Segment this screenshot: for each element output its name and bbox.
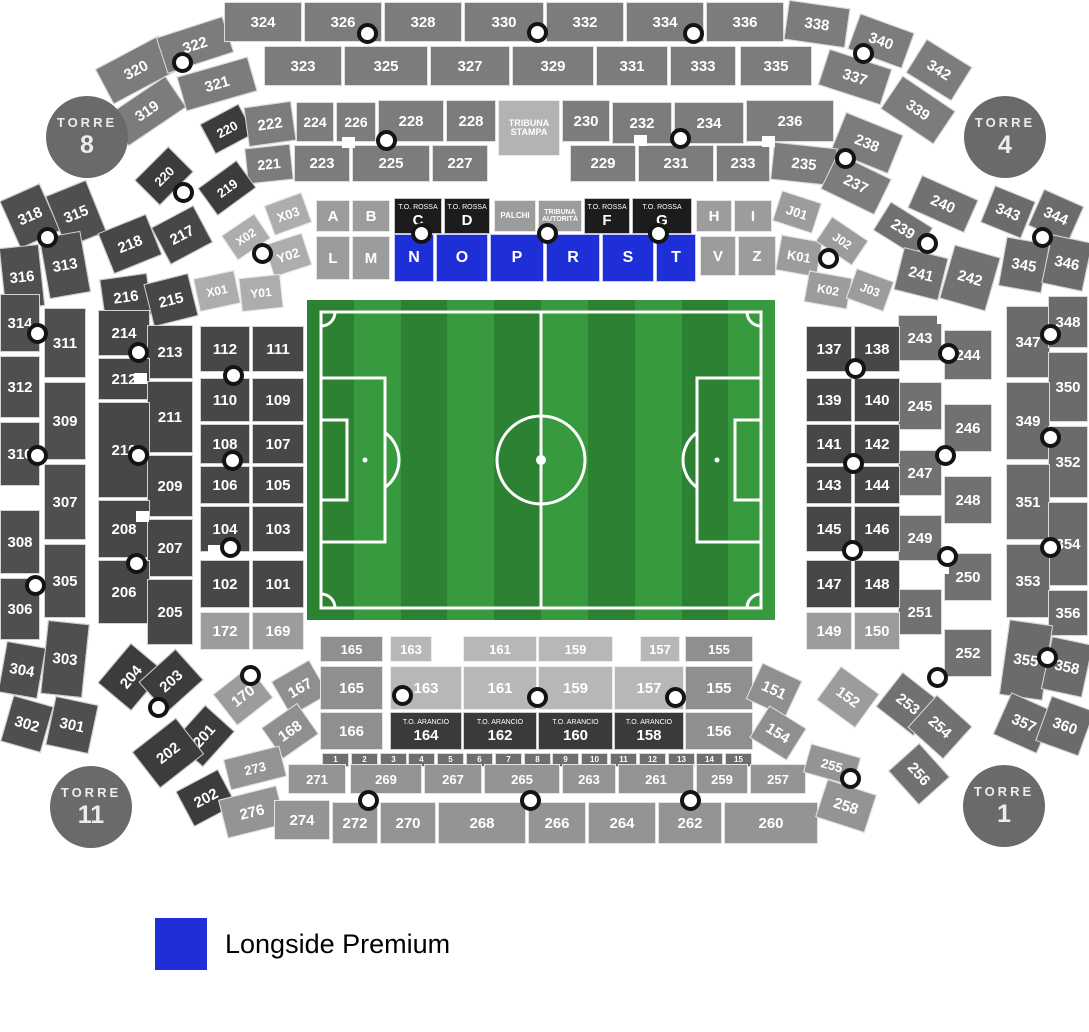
section-label: 166 bbox=[339, 724, 364, 739]
section-s[interactable]: S bbox=[602, 234, 654, 282]
section-label: 323 bbox=[290, 59, 315, 74]
section-105: 105 bbox=[252, 466, 304, 504]
section-221: 221 bbox=[244, 144, 294, 185]
section-label: 107 bbox=[265, 437, 290, 452]
section-label: 262 bbox=[677, 816, 702, 831]
section-b: B bbox=[352, 200, 390, 232]
section-270: 270 bbox=[380, 802, 436, 844]
section-sub-label: T.O. ARANCIO bbox=[403, 719, 449, 726]
section-label: 222 bbox=[257, 115, 284, 133]
section-label: 2 bbox=[362, 756, 366, 764]
section-label: 247 bbox=[907, 466, 932, 481]
section-label: 344 bbox=[1042, 204, 1071, 228]
section-label: 207 bbox=[157, 541, 182, 556]
gate-dot bbox=[223, 365, 244, 386]
section-325: 325 bbox=[344, 46, 428, 86]
section-150: 150 bbox=[854, 612, 900, 650]
section-label: 265 bbox=[511, 773, 533, 786]
section-360: 360 bbox=[1035, 696, 1089, 757]
section-label: 336 bbox=[732, 15, 757, 30]
section-301: 301 bbox=[45, 696, 98, 754]
section-label: P bbox=[512, 250, 523, 266]
tower-number: 8 bbox=[80, 131, 94, 160]
section-label: 228 bbox=[398, 114, 423, 129]
section-label: 233 bbox=[730, 156, 755, 171]
section-323: 323 bbox=[264, 46, 342, 86]
section-label: 109 bbox=[265, 393, 290, 408]
gate-dot bbox=[853, 43, 874, 64]
section-207: 207 bbox=[147, 519, 193, 577]
section-label: 148 bbox=[864, 577, 889, 592]
section-274: 274 bbox=[274, 800, 330, 840]
section-y01: Y01 bbox=[238, 274, 283, 312]
gate-dot bbox=[527, 22, 548, 43]
section-332: 332 bbox=[546, 2, 624, 42]
section-label: R bbox=[567, 250, 579, 266]
section-271: 271 bbox=[288, 764, 346, 794]
gate-dot bbox=[842, 540, 863, 561]
section-205: 205 bbox=[147, 579, 193, 645]
section-label: X01 bbox=[205, 283, 228, 299]
section-label: 248 bbox=[955, 493, 980, 508]
section-label: 259 bbox=[711, 773, 733, 786]
section-101: 101 bbox=[252, 560, 304, 608]
section-label: 328 bbox=[410, 15, 435, 30]
section-label: 151 bbox=[759, 678, 788, 702]
section-v: V bbox=[700, 236, 736, 276]
section-label: K01 bbox=[786, 248, 812, 265]
section-158: T.O. ARANCIO158 bbox=[614, 712, 684, 750]
section-163: 163 bbox=[390, 636, 432, 662]
section-label: 163 bbox=[413, 681, 438, 696]
section-label: 214 bbox=[111, 326, 136, 341]
section-252: 252 bbox=[944, 629, 992, 677]
section-label: 252 bbox=[955, 646, 980, 661]
section-263: 263 bbox=[562, 764, 616, 794]
section-225: 225 bbox=[352, 145, 430, 182]
section-label: 306 bbox=[7, 602, 32, 617]
gate-dot bbox=[37, 227, 58, 248]
section-245: 245 bbox=[898, 382, 942, 430]
gate-dot bbox=[835, 148, 856, 169]
section-label: S bbox=[623, 250, 634, 266]
section-label: 106 bbox=[212, 478, 237, 493]
section-112: 112 bbox=[200, 326, 250, 372]
section-147: 147 bbox=[806, 560, 852, 608]
section-label: 257 bbox=[767, 773, 789, 786]
section-label: 360 bbox=[1051, 715, 1080, 738]
vomitory-mark bbox=[134, 373, 147, 384]
section-label: 321 bbox=[203, 73, 231, 94]
section-259: 259 bbox=[696, 764, 748, 794]
section-label: 353 bbox=[1015, 574, 1040, 589]
section-155: 155 bbox=[685, 666, 753, 710]
section-label: 232 bbox=[629, 116, 654, 131]
section-label: 145 bbox=[816, 522, 841, 537]
section-label: 212 bbox=[111, 372, 136, 387]
section-label: 104 bbox=[212, 522, 237, 537]
section-label: 165 bbox=[341, 643, 363, 656]
section-label: 226 bbox=[344, 115, 367, 129]
section-p[interactable]: P bbox=[490, 234, 544, 282]
section-label: 351 bbox=[1015, 495, 1040, 510]
gate-dot bbox=[173, 182, 194, 203]
section-o[interactable]: O bbox=[436, 234, 488, 282]
section-sub-label: T.O. ROSSA bbox=[587, 204, 626, 211]
section-label: X03 bbox=[275, 204, 301, 224]
gate-dot bbox=[840, 768, 861, 789]
section-331: 331 bbox=[596, 46, 668, 86]
gate-dot bbox=[818, 248, 839, 269]
section-label: 261 bbox=[645, 773, 667, 786]
section-label: Y02 bbox=[275, 245, 301, 265]
section-label: 335 bbox=[763, 59, 788, 74]
section-236: 236 bbox=[746, 100, 834, 142]
section-sub-label: T.O. ARANCIO bbox=[552, 719, 598, 726]
section-label: 157 bbox=[649, 643, 671, 656]
section-label: 303 bbox=[52, 650, 78, 668]
section-label: 6 bbox=[477, 756, 481, 764]
section-label: 167 bbox=[285, 675, 314, 701]
section-label: D bbox=[462, 213, 473, 228]
section-label: 152 bbox=[833, 684, 862, 711]
section-label: 350 bbox=[1055, 380, 1080, 395]
section-222: 222 bbox=[243, 101, 296, 147]
section-label: 311 bbox=[53, 336, 77, 351]
section-k02: K02 bbox=[804, 270, 853, 309]
gate-dot bbox=[537, 223, 558, 244]
section-label: 223 bbox=[309, 156, 334, 171]
section-label: 244 bbox=[955, 348, 980, 363]
section-label: 169 bbox=[265, 624, 290, 639]
tower-4: TORRE4 bbox=[964, 96, 1046, 178]
section-label: 243 bbox=[907, 331, 932, 346]
section-333: 333 bbox=[670, 46, 736, 86]
section-label: 220 bbox=[152, 164, 177, 189]
section-label: 202 bbox=[191, 786, 220, 811]
section-label: 236 bbox=[777, 114, 802, 129]
section-label: 143 bbox=[816, 478, 841, 493]
gate-dot bbox=[1040, 324, 1061, 345]
section-label: 159 bbox=[563, 681, 588, 696]
section-160: T.O. ARANCIO160 bbox=[538, 712, 613, 750]
section-343: 343 bbox=[980, 185, 1036, 239]
gate-dot bbox=[128, 445, 149, 466]
section-label: 111 bbox=[266, 342, 289, 357]
section-106: 106 bbox=[200, 466, 250, 504]
gate-dot bbox=[1037, 647, 1058, 668]
section-sub-label: T.O. ARANCIO bbox=[626, 719, 672, 726]
section-label: 339 bbox=[903, 97, 932, 123]
section-sub-label: T.O. ARANCIO bbox=[477, 719, 523, 726]
section-230: 230 bbox=[562, 100, 610, 142]
gate-dot bbox=[392, 685, 413, 706]
gate-dot bbox=[680, 790, 701, 811]
section-label: 157 bbox=[636, 681, 661, 696]
gate-dot bbox=[843, 453, 864, 474]
section-a: A bbox=[316, 200, 350, 232]
section-213: 213 bbox=[147, 325, 193, 379]
section-328: 328 bbox=[384, 2, 462, 42]
tower-number: 1 bbox=[997, 800, 1011, 829]
section-label: 304 bbox=[8, 660, 35, 679]
gate-dot bbox=[172, 52, 193, 73]
section-label: V bbox=[713, 249, 723, 264]
section-label: 103 bbox=[265, 522, 290, 537]
vomitory-mark bbox=[634, 135, 647, 146]
section-label: 269 bbox=[375, 773, 397, 786]
section-label: N bbox=[408, 250, 420, 266]
gate-dot bbox=[252, 243, 273, 264]
section-223: 223 bbox=[294, 145, 350, 182]
section-label: 161 bbox=[487, 681, 512, 696]
section-label: 221 bbox=[257, 156, 282, 172]
section-label: 237 bbox=[841, 172, 870, 196]
section-label: 165 bbox=[339, 681, 364, 696]
tower-1: TORRE1 bbox=[963, 765, 1045, 847]
section-label: 327 bbox=[457, 59, 482, 74]
section-label: 11 bbox=[619, 756, 627, 764]
section-246: 246 bbox=[944, 404, 992, 452]
gate-dot bbox=[357, 23, 378, 44]
section-273: 273 bbox=[223, 745, 287, 790]
section-label: 349 bbox=[1015, 414, 1040, 429]
tower-number: 4 bbox=[998, 131, 1012, 160]
section-label: 256 bbox=[905, 760, 933, 789]
section-257: 257 bbox=[750, 764, 806, 794]
section-label: 155 bbox=[706, 681, 731, 696]
tower-label: TORRE bbox=[975, 115, 1035, 130]
section-269: 269 bbox=[350, 764, 422, 794]
vomitory-mark bbox=[762, 136, 775, 147]
section-152: 152 bbox=[816, 666, 880, 728]
section-label: 343 bbox=[994, 200, 1023, 223]
section-label: 227 bbox=[447, 156, 472, 171]
section-144: 144 bbox=[854, 466, 900, 504]
section-164: T.O. ARANCIO164 bbox=[390, 712, 462, 750]
section-249: 249 bbox=[898, 515, 942, 561]
section-label: 312 bbox=[7, 380, 32, 395]
section-143: 143 bbox=[806, 466, 852, 504]
section-label: 338 bbox=[804, 15, 831, 33]
section-label: 162 bbox=[487, 728, 512, 743]
section-label: 268 bbox=[469, 816, 494, 831]
section-166: 166 bbox=[320, 712, 383, 750]
section-label: 112 bbox=[213, 342, 237, 357]
section-label: 208 bbox=[111, 522, 136, 537]
section-label: 12 bbox=[648, 756, 657, 764]
section-label: 155 bbox=[708, 643, 730, 656]
section-label: 230 bbox=[573, 114, 598, 129]
section-j03: J03 bbox=[846, 268, 895, 312]
gate-dot bbox=[917, 233, 938, 254]
section-palchi: PALCHI bbox=[494, 200, 536, 232]
section-label: 254 bbox=[926, 713, 955, 741]
section-label: 234 bbox=[696, 116, 721, 131]
section-label: 220 bbox=[214, 118, 239, 140]
section-label: 14 bbox=[705, 756, 714, 764]
section-211: 211 bbox=[147, 381, 193, 453]
section-label: 229 bbox=[590, 156, 615, 171]
section-label: 105 bbox=[265, 478, 290, 493]
section-303: 303 bbox=[40, 620, 90, 698]
section-label: 139 bbox=[816, 393, 841, 408]
section-label: 318 bbox=[16, 204, 45, 228]
gate-dot bbox=[927, 667, 948, 688]
gate-dot bbox=[358, 790, 379, 811]
section-label: 342 bbox=[924, 57, 953, 83]
section-tribuna-stampa: TRIBUNA STAMPA bbox=[498, 100, 560, 156]
section-111: 111 bbox=[252, 326, 304, 372]
section-label: 235 bbox=[791, 155, 817, 173]
section-label: 271 bbox=[306, 773, 328, 786]
section-label: 158 bbox=[636, 728, 661, 743]
gate-dot bbox=[1040, 427, 1061, 448]
section-159: 159 bbox=[538, 666, 613, 710]
vomitory-mark bbox=[136, 511, 149, 522]
section-304: 304 bbox=[0, 641, 46, 699]
section-label: 319 bbox=[132, 98, 161, 124]
gate-dot bbox=[27, 323, 48, 344]
section-label: 320 bbox=[121, 58, 150, 83]
section-350: 350 bbox=[1048, 352, 1088, 422]
gate-dot bbox=[25, 575, 46, 596]
section-label: 352 bbox=[1055, 455, 1080, 470]
section-label: 216 bbox=[113, 288, 140, 306]
section-228: 228 bbox=[446, 100, 496, 142]
section-label: I bbox=[751, 209, 755, 224]
section-156: 156 bbox=[685, 712, 753, 750]
section-sub-label: T.O. ROSSA bbox=[447, 204, 486, 211]
section-label: 245 bbox=[907, 399, 932, 414]
section-338: 338 bbox=[784, 0, 851, 48]
section-label: 272 bbox=[342, 816, 367, 831]
section-label: 217 bbox=[167, 223, 196, 248]
section-label: 211 bbox=[158, 410, 182, 425]
section-356: 356 bbox=[1048, 590, 1088, 636]
section-label: 160 bbox=[563, 728, 588, 743]
section-218: 218 bbox=[98, 214, 163, 274]
section-label: 9 bbox=[563, 756, 567, 764]
section-label: 326 bbox=[330, 15, 355, 30]
section-157: 157 bbox=[640, 636, 680, 662]
gate-dot bbox=[520, 790, 541, 811]
section-label: A bbox=[328, 209, 339, 224]
section-label: 228 bbox=[458, 114, 483, 129]
section-251: 251 bbox=[898, 589, 942, 635]
gate-dot bbox=[128, 342, 149, 363]
section-label: 267 bbox=[442, 773, 464, 786]
section-label: 102 bbox=[212, 577, 237, 592]
section-label: 309 bbox=[52, 414, 77, 429]
section-label: 305 bbox=[52, 574, 77, 589]
section-label: 302 bbox=[13, 713, 41, 734]
section-155: 155 bbox=[685, 636, 753, 662]
section-248: 248 bbox=[944, 476, 992, 524]
section-label: 218 bbox=[116, 232, 145, 255]
section-label: 146 bbox=[864, 522, 889, 537]
section-label: Z bbox=[752, 249, 761, 264]
tower-label: TORRE bbox=[57, 115, 117, 130]
gate-dot bbox=[1032, 227, 1053, 248]
section-label: 5 bbox=[448, 756, 452, 764]
gate-dot bbox=[411, 223, 432, 244]
gate-dot bbox=[938, 343, 959, 364]
section-label: 150 bbox=[864, 624, 889, 639]
section-d: T.O. ROSSAD bbox=[444, 198, 490, 234]
section-148: 148 bbox=[854, 560, 900, 608]
section-349: 349 bbox=[1006, 382, 1050, 460]
section-label: 246 bbox=[955, 421, 980, 436]
gate-dot bbox=[148, 697, 169, 718]
section-label: 1 bbox=[333, 756, 337, 764]
section-110: 110 bbox=[200, 378, 250, 422]
gate-dot bbox=[845, 358, 866, 379]
section-103: 103 bbox=[252, 506, 304, 552]
section-208: 208 bbox=[98, 500, 150, 558]
section-label: 332 bbox=[572, 15, 597, 30]
section-label: 215 bbox=[157, 290, 185, 311]
section-label: 315 bbox=[62, 202, 91, 225]
section-label: 138 bbox=[864, 342, 889, 357]
section-102: 102 bbox=[200, 560, 250, 608]
section-label: 264 bbox=[609, 816, 634, 831]
section-label: 239 bbox=[888, 216, 917, 242]
section-label: 331 bbox=[619, 59, 644, 74]
gate-dot bbox=[220, 537, 241, 558]
football-pitch bbox=[307, 300, 775, 620]
tower-label: TORRE bbox=[974, 784, 1034, 799]
section-209: 209 bbox=[147, 455, 193, 517]
section-162: T.O. ARANCIO162 bbox=[463, 712, 537, 750]
section-label: 325 bbox=[373, 59, 398, 74]
section-label: H bbox=[709, 209, 720, 224]
section-311: 311 bbox=[44, 308, 86, 378]
section-label: 141 bbox=[816, 437, 841, 452]
section-label: 308 bbox=[7, 535, 32, 550]
section-label: O bbox=[456, 250, 468, 266]
section-h: H bbox=[696, 200, 732, 232]
section-label: 273 bbox=[243, 759, 267, 777]
section-label: 168 bbox=[275, 718, 304, 745]
section-sub-label: T.O. ROSSA bbox=[398, 204, 437, 211]
section-l: L bbox=[316, 236, 350, 280]
section-165: 165 bbox=[320, 636, 383, 662]
section-label: TRIBUNA AUTORITÀ bbox=[542, 209, 578, 223]
section-label: L bbox=[328, 251, 337, 266]
section-264: 264 bbox=[588, 802, 656, 844]
section-label: 10 bbox=[590, 756, 599, 764]
tower-11: TORRE11 bbox=[50, 766, 132, 848]
section-154: 154 bbox=[749, 705, 806, 761]
section-159: 159 bbox=[538, 636, 613, 662]
section-label: 3 bbox=[391, 756, 395, 764]
section-267: 267 bbox=[424, 764, 482, 794]
section-f: T.O. ROSSAF bbox=[584, 198, 630, 234]
section-label: 205 bbox=[157, 605, 182, 620]
section-label: J02 bbox=[830, 230, 853, 251]
section-label: 147 bbox=[816, 577, 841, 592]
section-139: 139 bbox=[806, 378, 852, 422]
section-label: 15 bbox=[734, 756, 743, 764]
section-label: 204 bbox=[117, 663, 145, 692]
section-label: 137 bbox=[816, 342, 841, 357]
section-label: 164 bbox=[413, 728, 438, 743]
section-149: 149 bbox=[806, 612, 852, 650]
section-169: 169 bbox=[252, 612, 304, 650]
section-324: 324 bbox=[224, 2, 302, 42]
section-label: J01 bbox=[785, 202, 810, 221]
